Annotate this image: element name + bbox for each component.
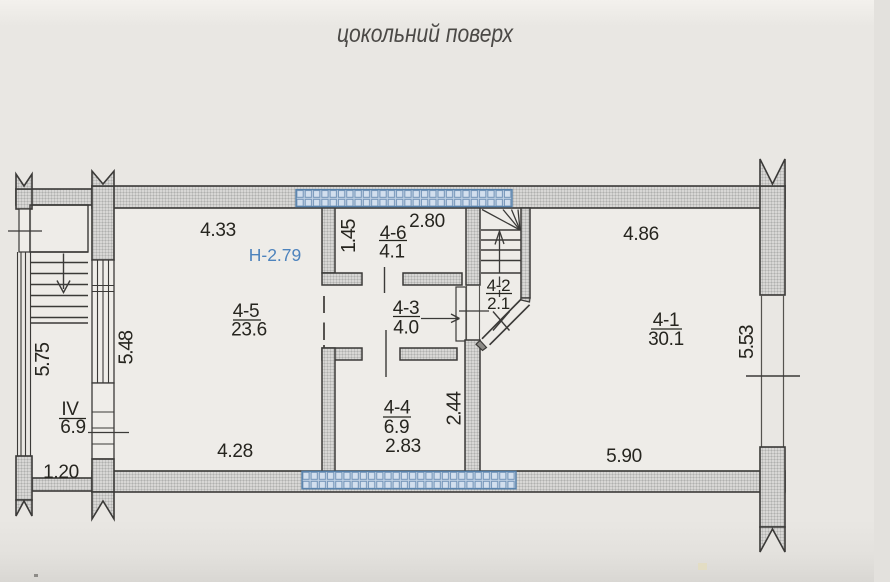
svg-text:цокольний поверх: цокольний поверх [337,20,514,48]
svg-text:5.53: 5.53 [736,325,758,359]
svg-text:2.44: 2.44 [444,391,466,425]
svg-text:2.80: 2.80 [409,211,445,232]
svg-text:5.75: 5.75 [32,342,54,376]
svg-text:2.1: 2.1 [487,294,510,313]
svg-text:4.33: 4.33 [200,220,236,241]
svg-text:5.90: 5.90 [606,446,642,467]
svg-text:1.45: 1.45 [338,219,360,253]
svg-text:4.0: 4.0 [393,318,419,339]
svg-text:23.6: 23.6 [231,320,267,341]
svg-text:6.9: 6.9 [384,417,410,438]
svg-text:4.28: 4.28 [217,441,253,462]
svg-text:1.20: 1.20 [43,462,79,483]
svg-text:4.1: 4.1 [379,242,405,263]
svg-text:5.48: 5.48 [116,330,138,364]
svg-text:4-2: 4-2 [487,276,511,295]
svg-text:4-1: 4-1 [653,310,680,331]
svg-text:6.9: 6.9 [60,417,86,438]
svg-text:4-4: 4-4 [384,398,411,419]
svg-text:30.1: 30.1 [648,329,684,350]
svg-text:2.83: 2.83 [385,436,421,457]
svg-text:4.86: 4.86 [623,224,659,245]
svg-text:Н-2.79: Н-2.79 [249,245,302,265]
